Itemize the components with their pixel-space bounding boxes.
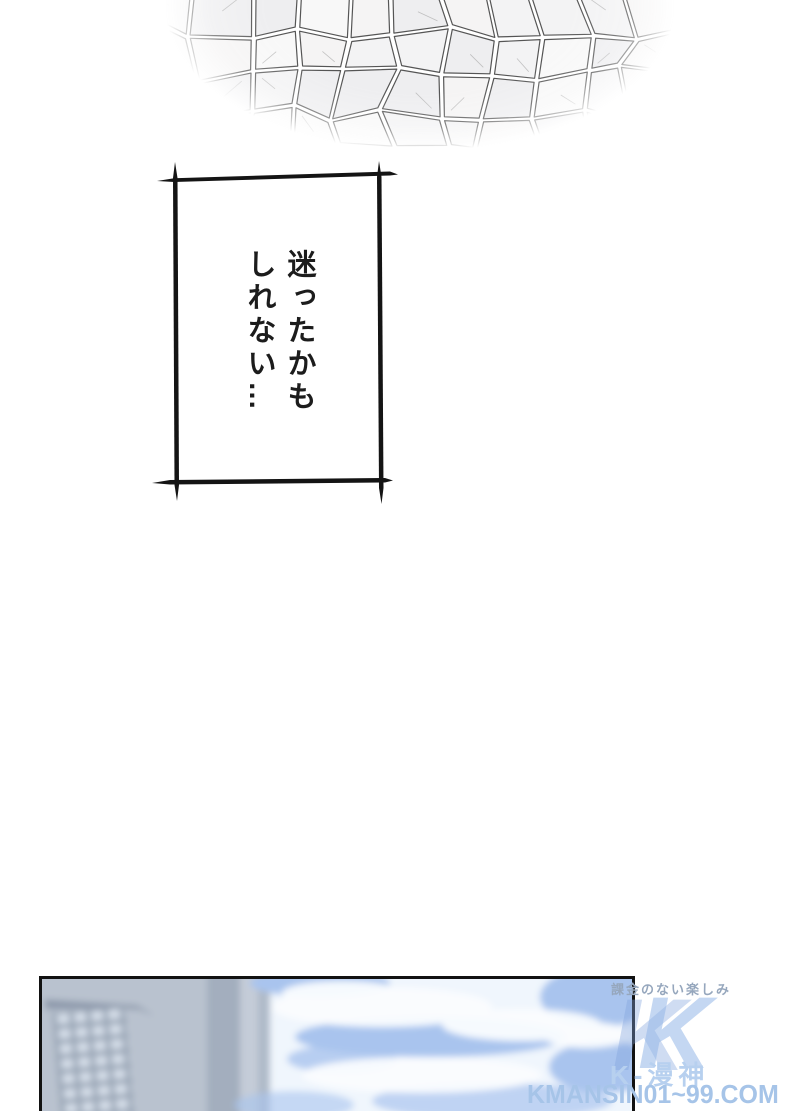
city-sky-scene <box>42 979 632 1111</box>
k-logo-letter-front: K <box>638 982 712 1084</box>
manga-panel <box>39 976 635 1111</box>
building-corner-strip <box>258 979 272 1111</box>
building-light-strip <box>240 979 258 1111</box>
stone-polygons <box>139 0 685 156</box>
building-dark-strip <box>207 979 240 1111</box>
dialogue-text: 迷ったかも しれない… <box>239 249 319 439</box>
stone-wall-drawing <box>0 0 800 170</box>
